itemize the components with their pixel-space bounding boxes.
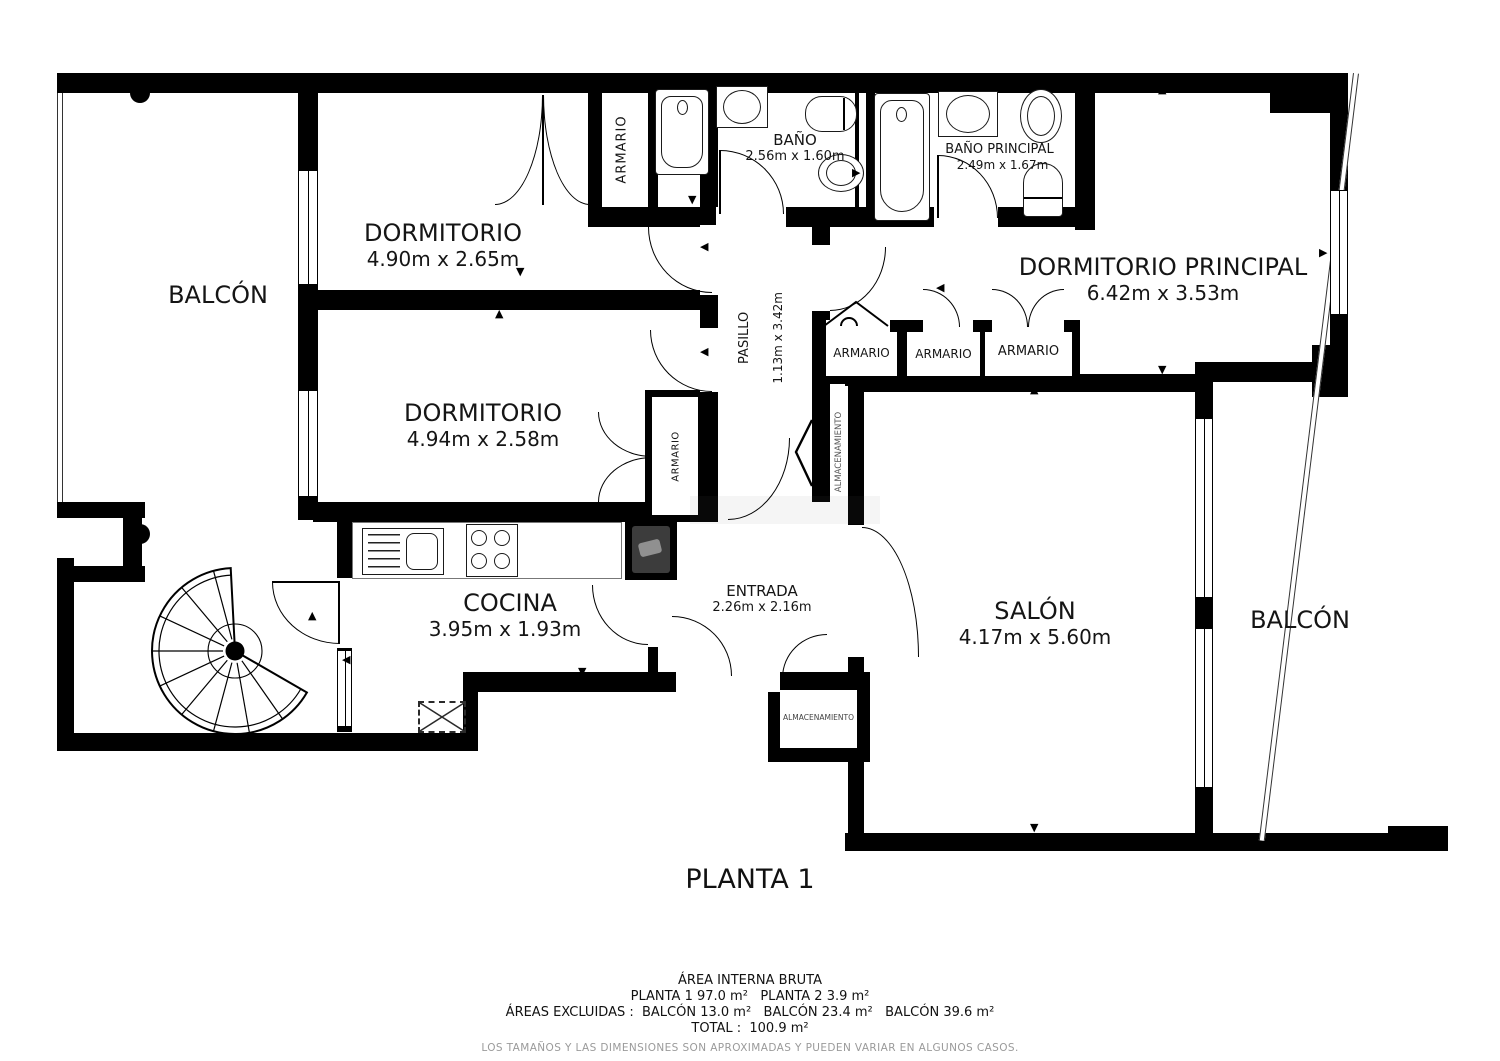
floor-plan-page: ▲▼◀▶◀▲▶▼▲▼◀▼◀▲▼▲▲◀ BALCÓN DORMITORIO 4.9… — [0, 0, 1500, 1061]
closet-label-armario-3: ARMARIO — [985, 344, 1072, 359]
room-label-balcon-right: BALCÓN — [1220, 606, 1380, 634]
room-dims-bano: 2.56m x 1.60m — [735, 149, 855, 164]
room-dims-salon: 4.17m x 5.60m — [935, 625, 1135, 649]
labels-layer: BALCÓN DORMITORIO 4.90m x 2.65m ARMARIO … — [0, 0, 1500, 1061]
disclaimer-text: LOS TAMAÑOS Y LAS DIMENSIONES SON APROXI… — [0, 1042, 1500, 1054]
room-label-bano: BAÑO — [735, 131, 855, 149]
room-label-dormitorio2: DORMITORIO — [383, 399, 583, 427]
pasillo-dims: 1.13m x 3.42m — [770, 292, 784, 384]
room-label-entrada: ENTRADA — [692, 582, 832, 600]
area-summary-total: TOTAL : 100.9 m² — [0, 1021, 1500, 1036]
room-dims-cocina: 3.95m x 1.93m — [405, 617, 605, 641]
room-label-pasillo: PASILLO 1.13m x 3.42m — [720, 280, 804, 420]
pasillo-name: PASILLO — [737, 312, 752, 364]
room-label-armario-top: ARMARIO — [615, 90, 630, 210]
room-dims-dormitorio-principal: 6.42m x 3.53m — [1013, 281, 1313, 305]
closet-label-almacenamiento-strip: ALMACENAMIENTO — [834, 387, 844, 517]
room-dims-entrada: 2.26m x 2.16m — [692, 600, 832, 615]
room-label-bano-principal: BAÑO PRINCIPAL — [927, 142, 1072, 157]
area-summary-excluded: ÁREAS EXCLUIDAS : BALCÓN 13.0 m² BALCÓN … — [0, 1005, 1500, 1020]
closet-label-armario-2: ARMARIO — [907, 347, 980, 361]
room-label-cocina: COCINA — [410, 589, 610, 617]
room-dims-dormitorio2: 4.94m x 2.58m — [383, 427, 583, 451]
area-summary-plantas: PLANTA 1 97.0 m² PLANTA 2 3.9 m² — [0, 989, 1500, 1004]
room-label-salon: SALÓN — [935, 597, 1135, 625]
room-label-dormitorio1: DORMITORIO — [343, 219, 543, 247]
closet-label-armario-1: ARMARIO — [826, 346, 897, 360]
floor-title: PLANTA 1 — [0, 864, 1500, 895]
room-dims-bano-principal: 2.49m x 1.67m — [930, 158, 1075, 172]
area-summary-title: ÁREA INTERNA BRUTA — [0, 973, 1500, 988]
room-label-balcon-left: BALCÓN — [138, 281, 298, 309]
closet-label-almacenamiento-box: ALMACENAMIENTO — [780, 713, 857, 722]
room-label-dormitorio-principal: DORMITORIO PRINCIPAL — [1013, 253, 1313, 281]
room-dims-dormitorio1: 4.90m x 2.65m — [343, 247, 543, 271]
closet-label-armario-mid: ARMARIO — [671, 397, 682, 517]
area-summary: ÁREA INTERNA BRUTA PLANTA 1 97.0 m² PLAN… — [0, 972, 1500, 1055]
